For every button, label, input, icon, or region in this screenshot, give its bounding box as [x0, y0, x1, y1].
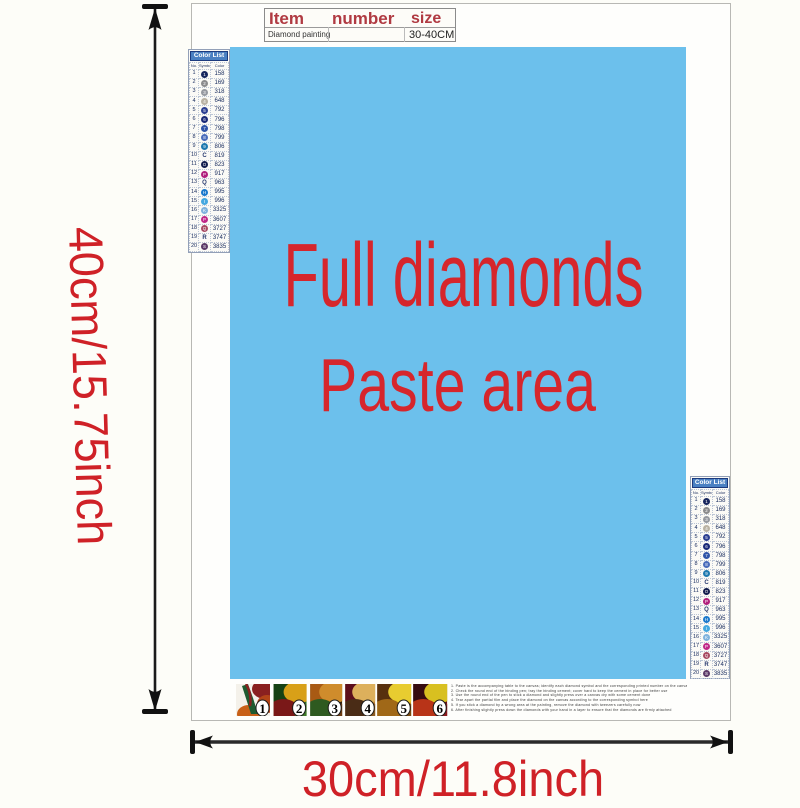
- svg-text:2: 2: [296, 701, 303, 716]
- svg-text:6: 6: [436, 701, 443, 716]
- svg-text:4: 4: [364, 701, 371, 716]
- svg-text:5: 5: [400, 701, 407, 716]
- svg-text:Full diamonds: Full diamonds: [284, 226, 644, 320]
- svg-text:1: 1: [259, 701, 266, 716]
- svg-text:3: 3: [331, 701, 338, 716]
- svg-text:Paste area: Paste area: [319, 343, 596, 423]
